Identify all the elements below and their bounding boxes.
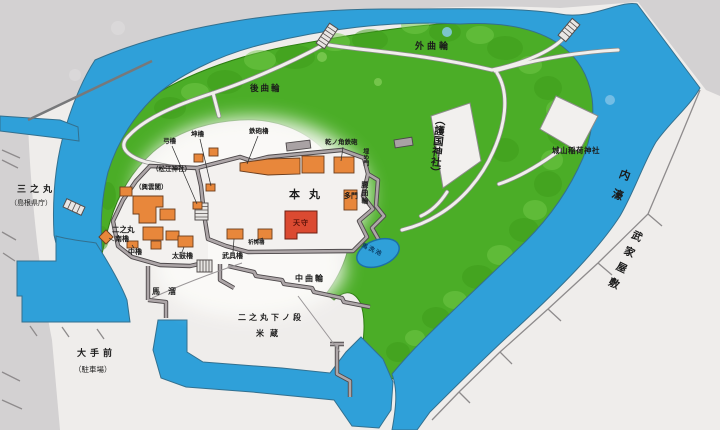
label-otemae-sub: （駐車場） <box>74 366 112 374</box>
label-uzume-mon: 埋め門 <box>361 148 368 166</box>
building <box>120 187 132 196</box>
label-kounkaku: （興雲閣） <box>135 184 168 191</box>
north-wall-building <box>302 156 324 173</box>
label-nakakuruwa: 中曲輪 <box>295 275 325 284</box>
taiko-yagura-turret <box>178 236 193 247</box>
castle-map-board: 外曲輪 後曲輪 （護国神社） 城山稲荷神社 内濠 武家屋敷 三之丸 （島根県庁）… <box>0 0 720 430</box>
label-jozan-inari-jinja: 城山稲荷神社 <box>552 147 600 155</box>
label-inui-no-kado-teppo: 乾ノ角鉄砲 <box>325 139 358 146</box>
label-yumi-yagura: 弓櫓 <box>163 138 176 145</box>
label-komegura: 米蔵 <box>256 330 284 339</box>
building <box>151 241 161 249</box>
label-umadamari: 馬溜 <box>152 288 184 297</box>
label-otemae: 大手前 <box>77 349 116 359</box>
label-minami-yagura: 南櫓 <box>115 236 129 244</box>
label-sotokuruwa: 外曲輪 <box>415 42 451 52</box>
matsue-shrine-building <box>160 209 175 220</box>
label-hitsujisaru-yagura: 坤櫓 <box>191 131 204 138</box>
inui-corner-building <box>334 157 354 173</box>
building <box>143 227 163 240</box>
label-matsue-jinja: （松江神社） <box>152 166 191 173</box>
label-honmaru: 本丸 <box>289 189 329 201</box>
bugu-yagura-turret <box>227 229 243 239</box>
label-teppo-yagura: 鉄砲櫓 <box>249 128 269 135</box>
label-taiko-yagura: 太鼓櫓 <box>172 253 193 261</box>
stairs-south <box>197 260 212 272</box>
label-ushirokuruwa: 後曲輪 <box>250 85 282 95</box>
label-tenshu: 天守 <box>293 220 309 228</box>
yumi-yagura-turret <box>193 202 202 209</box>
corner-turret <box>194 154 203 162</box>
kito-yagura-turret <box>258 229 272 239</box>
label-kito-yagura: 祈祷櫓 <box>248 240 265 246</box>
label-ninomaru-shita-no-dan: 二之丸下ノ段 <box>238 314 304 323</box>
label-sannomaru-sub: （島根県庁） <box>10 200 52 208</box>
label-tamon: 多門 <box>344 193 358 201</box>
label-bugu-yagura: 武具櫓 <box>222 253 243 261</box>
label-ninomaru: 二之丸 <box>112 226 135 234</box>
corner-turret <box>209 148 218 156</box>
label-koshikuruwa: 腰曲輪 <box>360 181 368 205</box>
label-naka-yagura: 中櫓 <box>128 249 142 257</box>
label-sannomaru: 三之丸 <box>17 185 56 195</box>
building <box>166 231 179 240</box>
